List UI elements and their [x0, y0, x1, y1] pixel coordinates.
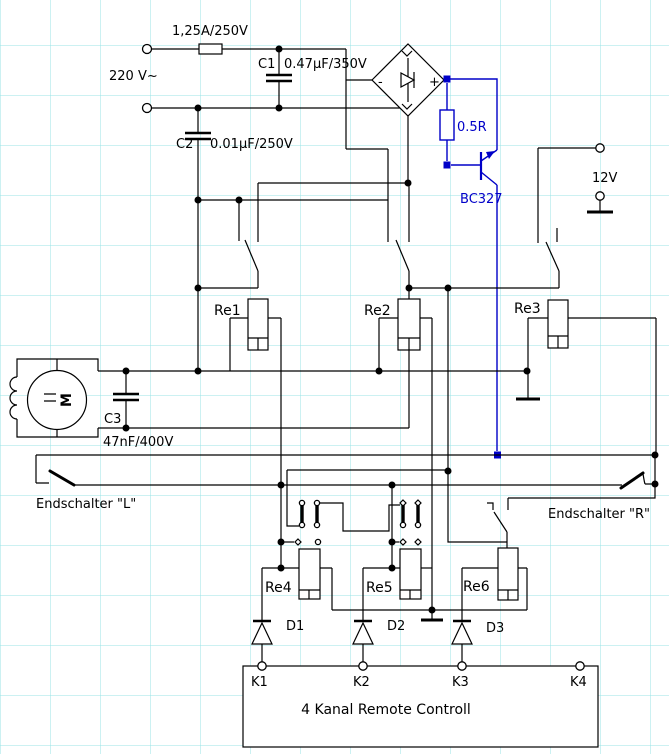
supply-label: 12V: [592, 171, 618, 186]
fuse-symbol: [199, 44, 222, 54]
motor-label: M: [59, 393, 75, 407]
circuit-schematic: 1,25A/250V 220 V~ C1 0.47µF/350V C2 0.01…: [0, 0, 669, 754]
grid-lines: [0, 0, 669, 754]
c3-label: C3: [104, 412, 121, 427]
re2-label: Re2: [364, 303, 391, 319]
k2-label: K2: [353, 675, 370, 690]
supply-terminal: [596, 144, 604, 152]
fuse-label: 1,25A/250V: [172, 24, 248, 39]
c1-label: C1: [258, 57, 275, 72]
mains-terminal-n: [143, 104, 152, 113]
resistor-0r5: [440, 110, 454, 140]
k1-terminal: [258, 662, 266, 670]
k1-label: K1: [251, 675, 268, 690]
re5-label: Re5: [366, 580, 393, 596]
re1-label: Re1: [214, 303, 241, 319]
d3-label: D3: [486, 621, 504, 636]
c1-value: 0.47µF/350V: [284, 57, 367, 72]
k4-label: K4: [570, 675, 587, 690]
bridge-plus-label: +: [429, 75, 440, 90]
limit-switch-right-label: Endschalter "R": [548, 507, 650, 522]
junction-square-2: [444, 162, 451, 169]
resistor-label: 0.5R: [457, 120, 487, 135]
receiver-box-label: 4 Kanal Remote Controll: [301, 702, 471, 718]
re4-label: Re4: [265, 580, 292, 596]
re6-label: Re6: [463, 579, 490, 595]
c2-label: C2: [176, 137, 193, 152]
k2-terminal: [359, 662, 367, 670]
transistor-label: BC327: [460, 192, 503, 207]
c3-value: 47nF/400V: [103, 435, 173, 450]
c2-value: 0.01µF/250V: [210, 137, 293, 152]
k4-terminal: [576, 662, 584, 670]
motor-symbol: [28, 371, 87, 430]
k3-terminal: [458, 662, 466, 670]
d1-label: D1: [286, 619, 304, 634]
junction-square-1: [444, 76, 451, 83]
re3-label: Re3: [514, 301, 541, 317]
d2-label: D2: [387, 619, 405, 634]
mains-terminal-l: [143, 45, 152, 54]
schematic-page: 1,25A/250V 220 V~ C1 0.47µF/350V C2 0.01…: [0, 0, 669, 754]
mains-label: 220 V~: [109, 69, 158, 84]
bridge-minus-label: -: [378, 75, 383, 90]
k3-label: K3: [452, 675, 469, 690]
ground-terminal: [596, 192, 604, 200]
limit-switch-left-label: Endschalter "L": [36, 497, 136, 512]
receiver-box: K1 K2 K3 K4 4 Kanal Remote Controll: [243, 662, 598, 747]
